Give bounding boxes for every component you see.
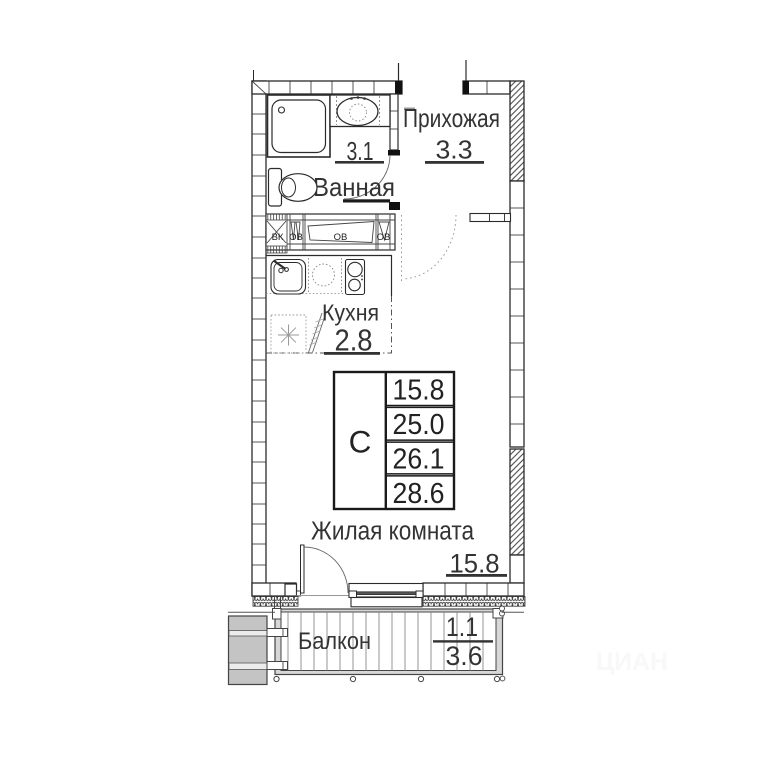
svg-text:Ванная: Ванная [313, 172, 395, 202]
svg-text:25.0: 25.0 [393, 409, 445, 441]
svg-text:Жилая комната: Жилая комната [311, 518, 475, 546]
svg-text:ЦИАН: ЦИАН [596, 648, 668, 676]
svg-text:3.3: 3.3 [436, 137, 473, 165]
svg-text:28.6: 28.6 [393, 478, 445, 510]
svg-text:ОВ: ОВ [289, 232, 303, 243]
svg-text:ОВ: ОВ [377, 232, 391, 243]
svg-text:15.8: 15.8 [393, 374, 445, 406]
svg-text:1.1: 1.1 [446, 612, 478, 642]
svg-text:Прихожая: Прихожая [403, 103, 500, 133]
svg-text:26.1: 26.1 [393, 443, 445, 475]
svg-text:3.6: 3.6 [446, 641, 483, 671]
svg-text:Балкон: Балкон [298, 628, 371, 655]
svg-text:С: С [349, 424, 372, 460]
svg-text:ВК: ВК [272, 232, 284, 243]
svg-text:ОВ: ОВ [334, 232, 348, 243]
